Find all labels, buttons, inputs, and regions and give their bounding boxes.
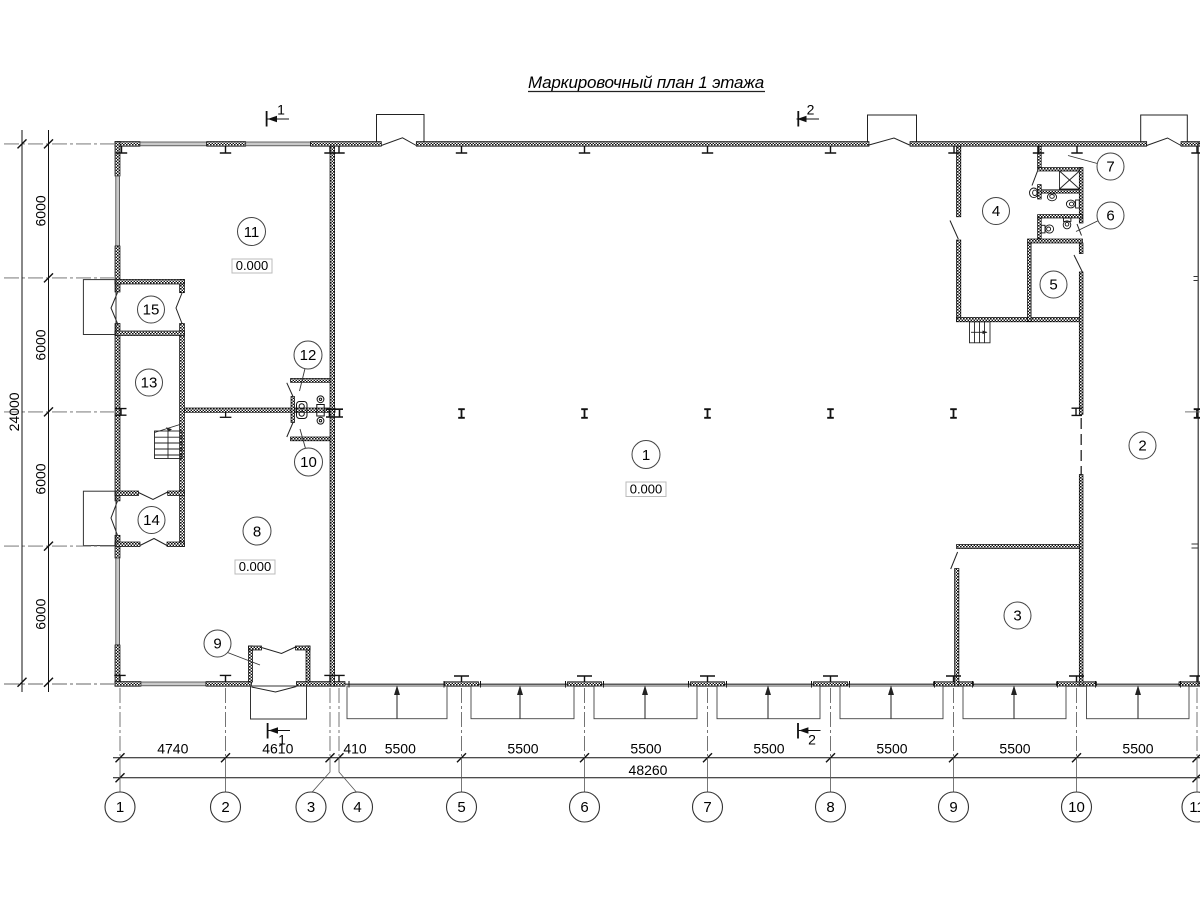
svg-text:5500: 5500	[999, 741, 1030, 757]
svg-text:2: 2	[1138, 438, 1146, 455]
svg-text:8: 8	[826, 799, 834, 816]
svg-text:1: 1	[116, 799, 124, 816]
svg-text:10: 10	[1068, 799, 1085, 816]
svg-text:4: 4	[992, 203, 1000, 220]
svg-text:6000: 6000	[33, 329, 49, 360]
svg-text:4610: 4610	[262, 741, 293, 757]
svg-text:13: 13	[141, 375, 158, 392]
svg-text:5: 5	[457, 799, 465, 816]
svg-text:11: 11	[1189, 799, 1200, 816]
svg-text:410: 410	[343, 741, 367, 757]
svg-text:14: 14	[143, 512, 160, 529]
svg-text:6000: 6000	[33, 463, 49, 494]
svg-text:4: 4	[353, 799, 361, 816]
svg-text:48260: 48260	[629, 762, 668, 778]
svg-text:12: 12	[300, 347, 317, 364]
svg-text:8: 8	[253, 523, 261, 540]
svg-text:10: 10	[300, 454, 317, 471]
svg-text:3: 3	[307, 799, 315, 816]
svg-text:5500: 5500	[1122, 741, 1153, 757]
svg-text:9: 9	[213, 636, 221, 653]
svg-text:0.000: 0.000	[239, 559, 272, 574]
svg-text:6000: 6000	[33, 598, 49, 629]
svg-text:24000: 24000	[6, 392, 22, 431]
svg-text:11: 11	[244, 224, 260, 241]
svg-text:5500: 5500	[876, 741, 907, 757]
svg-text:3: 3	[1013, 608, 1021, 625]
svg-text:2: 2	[807, 102, 815, 118]
svg-text:15: 15	[143, 302, 160, 319]
svg-text:0.000: 0.000	[236, 258, 269, 273]
svg-text:7: 7	[703, 799, 711, 816]
svg-text:5500: 5500	[630, 741, 661, 757]
svg-text:5500: 5500	[507, 741, 538, 757]
svg-text:2: 2	[808, 732, 816, 748]
svg-text:Маркировочный план 1 этажа: Маркировочный план 1 этажа	[528, 73, 764, 92]
svg-text:9: 9	[949, 799, 957, 816]
svg-text:6000: 6000	[33, 195, 49, 226]
svg-text:5500: 5500	[385, 741, 416, 757]
svg-text:1: 1	[277, 102, 285, 118]
svg-text:2: 2	[221, 799, 229, 816]
svg-text:6: 6	[580, 799, 588, 816]
svg-text:7: 7	[1106, 159, 1114, 176]
svg-text:1: 1	[642, 447, 650, 464]
svg-text:0.000: 0.000	[630, 481, 663, 496]
svg-text:5500: 5500	[753, 741, 784, 757]
svg-text:4740: 4740	[157, 741, 188, 757]
svg-text:5: 5	[1049, 277, 1057, 294]
svg-text:6: 6	[1106, 208, 1114, 225]
